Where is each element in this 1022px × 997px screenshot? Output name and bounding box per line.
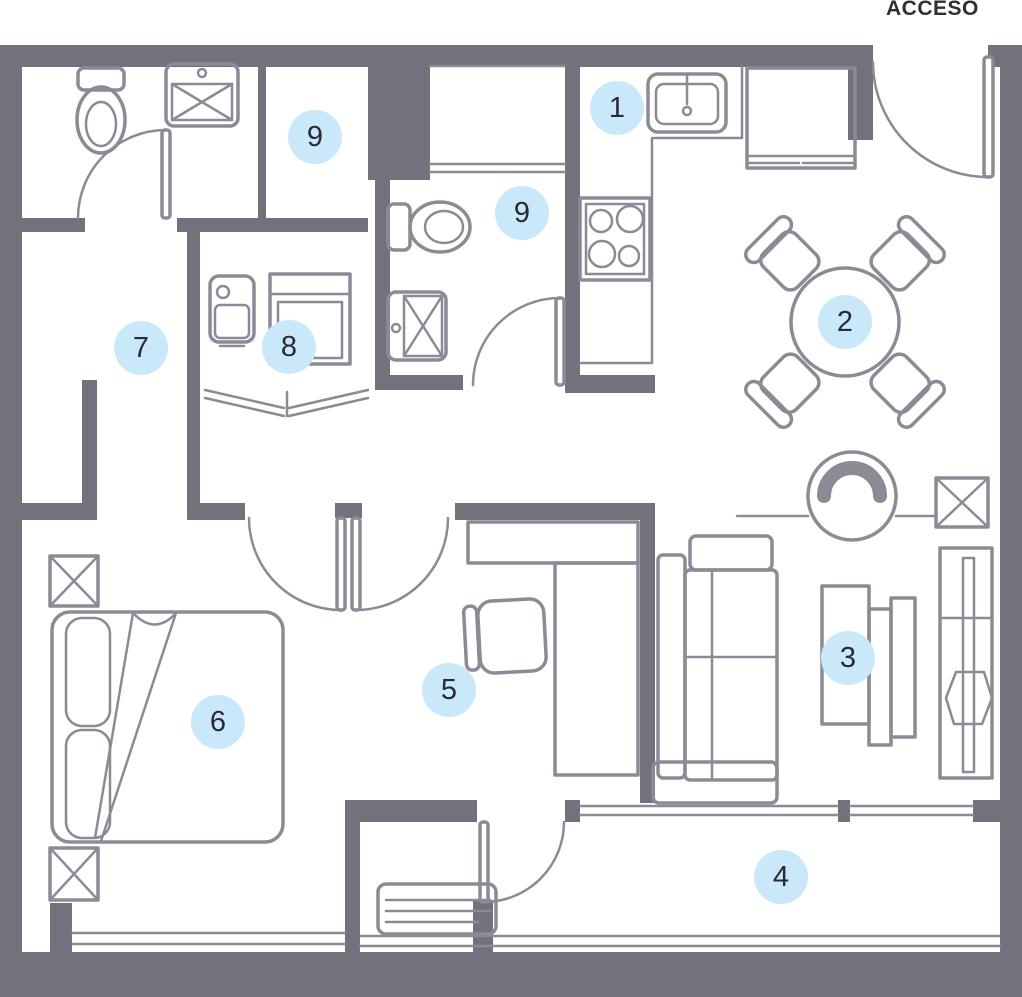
wardrobe-cabinet bbox=[940, 548, 992, 778]
bedroom-door bbox=[249, 518, 345, 610]
living-window-right bbox=[850, 806, 973, 815]
room-marker-6: 6 bbox=[191, 695, 245, 749]
dining-chair bbox=[742, 346, 827, 431]
nightstand-icon bbox=[50, 556, 98, 606]
room-marker-7: 7 bbox=[114, 321, 168, 375]
sink-vanity-icon bbox=[388, 292, 446, 360]
floor-plan: ACCESO 1234567899 bbox=[0, 0, 1022, 997]
bathroom1-fixtures bbox=[77, 64, 238, 153]
living-window bbox=[580, 806, 838, 815]
room-marker-5: 5 bbox=[422, 663, 476, 717]
stove-icon bbox=[580, 198, 650, 280]
windows bbox=[72, 806, 1000, 946]
room-marker-4: 4 bbox=[754, 850, 808, 904]
bathroom2-door bbox=[473, 298, 564, 385]
access-label: ACCESO bbox=[886, 0, 979, 21]
room-marker-9: 9 bbox=[288, 110, 342, 164]
toilet-icon bbox=[388, 202, 470, 252]
dining-chair bbox=[863, 346, 948, 431]
balcony-railing bbox=[360, 936, 1000, 946]
balcony-door bbox=[480, 822, 564, 902]
sofa bbox=[653, 536, 777, 803]
floor-plan-drawing bbox=[0, 0, 1022, 997]
desk bbox=[468, 522, 638, 563]
side-table-icon bbox=[936, 478, 988, 527]
kitchen-sink-icon bbox=[648, 74, 726, 132]
room-marker-3: 3 bbox=[821, 631, 875, 685]
doors bbox=[78, 57, 993, 902]
bed bbox=[52, 612, 283, 842]
dining-chair bbox=[863, 213, 948, 298]
dining-chair bbox=[742, 213, 827, 298]
room-marker-1: 1 bbox=[590, 81, 644, 135]
bedroom-window bbox=[72, 933, 345, 944]
room-marker-8: 8 bbox=[262, 320, 316, 374]
desk-chair bbox=[463, 598, 547, 674]
study-door bbox=[352, 518, 448, 610]
linen-closet bbox=[430, 66, 565, 172]
sink-vanity-icon bbox=[166, 64, 238, 126]
room-marker-9: 9 bbox=[495, 186, 549, 240]
closet-bifold-doors bbox=[205, 390, 368, 416]
study-furniture bbox=[463, 522, 638, 775]
water-heater-icon bbox=[210, 276, 254, 346]
nightstand-icon bbox=[50, 848, 98, 900]
room-marker-2: 2 bbox=[818, 295, 872, 349]
toilet-icon bbox=[77, 68, 125, 153]
entry-door bbox=[873, 57, 993, 177]
desk-return bbox=[555, 563, 638, 775]
living-room-furniture bbox=[653, 452, 992, 803]
fridge-icon bbox=[747, 68, 855, 168]
lounge-chair bbox=[808, 452, 896, 540]
bedroom-furniture bbox=[50, 556, 283, 900]
